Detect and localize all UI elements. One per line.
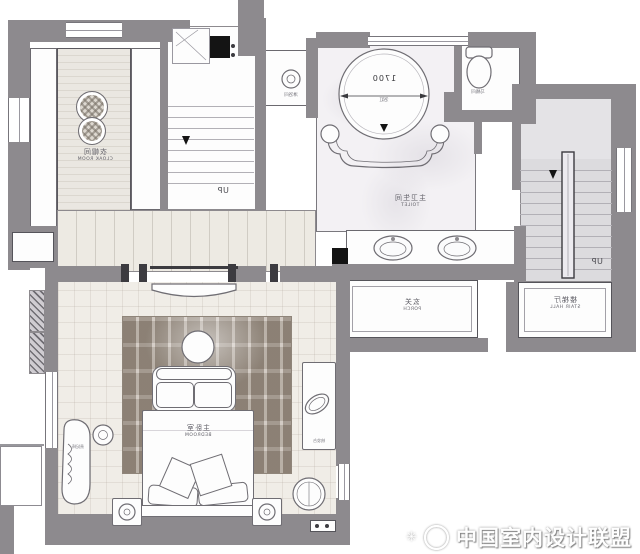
label-dresser: 梳妆台 — [300, 438, 338, 443]
hinge-dot — [315, 524, 319, 528]
door-notch — [310, 520, 336, 532]
label-wc: 马桶间 — [456, 90, 500, 96]
label-zh: 主卧室 — [160, 424, 236, 433]
wall — [454, 110, 520, 122]
door-jamb — [270, 264, 278, 282]
vanity-counter — [346, 230, 516, 266]
wall — [512, 98, 520, 190]
window-hatch — [29, 290, 45, 332]
window — [66, 22, 122, 38]
wall — [336, 498, 350, 545]
label-zh: 衣帽间 — [58, 148, 132, 157]
wall — [45, 282, 58, 372]
label-cloak-room: 衣帽间 CLOAK ROOM — [58, 148, 132, 163]
floor-plan: 衣帽间 CLOAK ROOM 主卫生间 TOILET 玄关 PORCH 楼梯厅 … — [0, 0, 640, 554]
label-en: STAIR HALL — [532, 305, 598, 311]
wall — [336, 266, 350, 466]
label-en: BEDROOM — [160, 433, 236, 439]
stair-winder-box — [172, 28, 210, 64]
wall — [506, 338, 636, 352]
sparkle-icon: ✳ — [406, 530, 417, 545]
window-sill-line — [150, 266, 238, 269]
label-en: CLOAK ROOM — [58, 157, 132, 163]
label-tub-dimension: 1700 — [354, 74, 414, 84]
label-porch: 玄关 PORCH — [380, 298, 444, 313]
hinge-dot — [231, 53, 235, 57]
storage-box — [12, 232, 54, 262]
label-up-left: UP — [208, 186, 238, 196]
label-zh: 玄关 — [380, 298, 444, 307]
sofa-cushion — [156, 382, 194, 408]
sofa-cushion — [194, 382, 232, 408]
label-zh: 主卫生间 — [378, 194, 442, 203]
ottoman — [78, 117, 106, 145]
sofa-back — [156, 368, 232, 380]
label-chaise: 贵妃椅 — [60, 444, 96, 449]
toilet-room — [458, 42, 520, 116]
label-en: TOILET — [378, 203, 442, 209]
window — [338, 464, 350, 500]
wall — [336, 338, 488, 352]
window — [368, 36, 468, 46]
hinge-dot — [231, 44, 235, 48]
wall — [45, 448, 58, 516]
balcony — [0, 446, 42, 506]
wall — [236, 266, 266, 282]
dressing-table — [302, 362, 336, 450]
wall — [506, 282, 518, 338]
door-jamb — [121, 264, 129, 282]
watermark-text: 中国室内设计联盟 — [456, 522, 632, 552]
label-shower: 淋浴间 — [268, 93, 314, 99]
wall — [468, 32, 520, 48]
wall — [474, 122, 482, 154]
wall — [45, 514, 345, 545]
label-en: PORCH — [380, 307, 444, 313]
nightstand — [112, 498, 142, 526]
door-leaf — [208, 36, 230, 58]
label-stair-hall: 楼梯厅 STAIR HALL — [532, 296, 598, 311]
wall — [612, 84, 636, 342]
headboard — [136, 505, 260, 517]
wall — [0, 506, 14, 554]
label-master-bedroom: 主卧室 BEDROOM — [160, 424, 236, 439]
hinge-dot — [325, 524, 329, 528]
label-up-right: UP — [582, 257, 612, 267]
cloak-closet-left — [30, 48, 57, 230]
corridor-floor — [57, 210, 316, 272]
wall — [160, 42, 168, 210]
wall — [332, 264, 490, 280]
door-jamb — [139, 264, 147, 282]
wall — [306, 38, 318, 118]
window-hatch — [29, 332, 45, 374]
label-bathtub: 浴缸 — [364, 98, 404, 104]
window — [8, 98, 30, 142]
wall — [486, 264, 520, 280]
wall — [280, 266, 338, 282]
wall — [520, 32, 536, 124]
label-zh: 楼梯厅 — [532, 296, 598, 305]
wall — [316, 32, 370, 48]
watermark: ✳ 中国室内设计联盟 — [406, 522, 632, 552]
wall — [238, 0, 264, 56]
cloak-closet-right — [131, 48, 161, 210]
cida-logo-icon — [424, 525, 449, 550]
window — [616, 148, 632, 212]
wall — [8, 20, 30, 100]
window — [45, 372, 58, 448]
nightstand — [252, 498, 282, 526]
stair-left-treads — [168, 96, 254, 188]
label-master-toilet: 主卫生间 TOILET — [378, 194, 442, 209]
wall — [45, 266, 123, 282]
wall — [444, 92, 456, 122]
